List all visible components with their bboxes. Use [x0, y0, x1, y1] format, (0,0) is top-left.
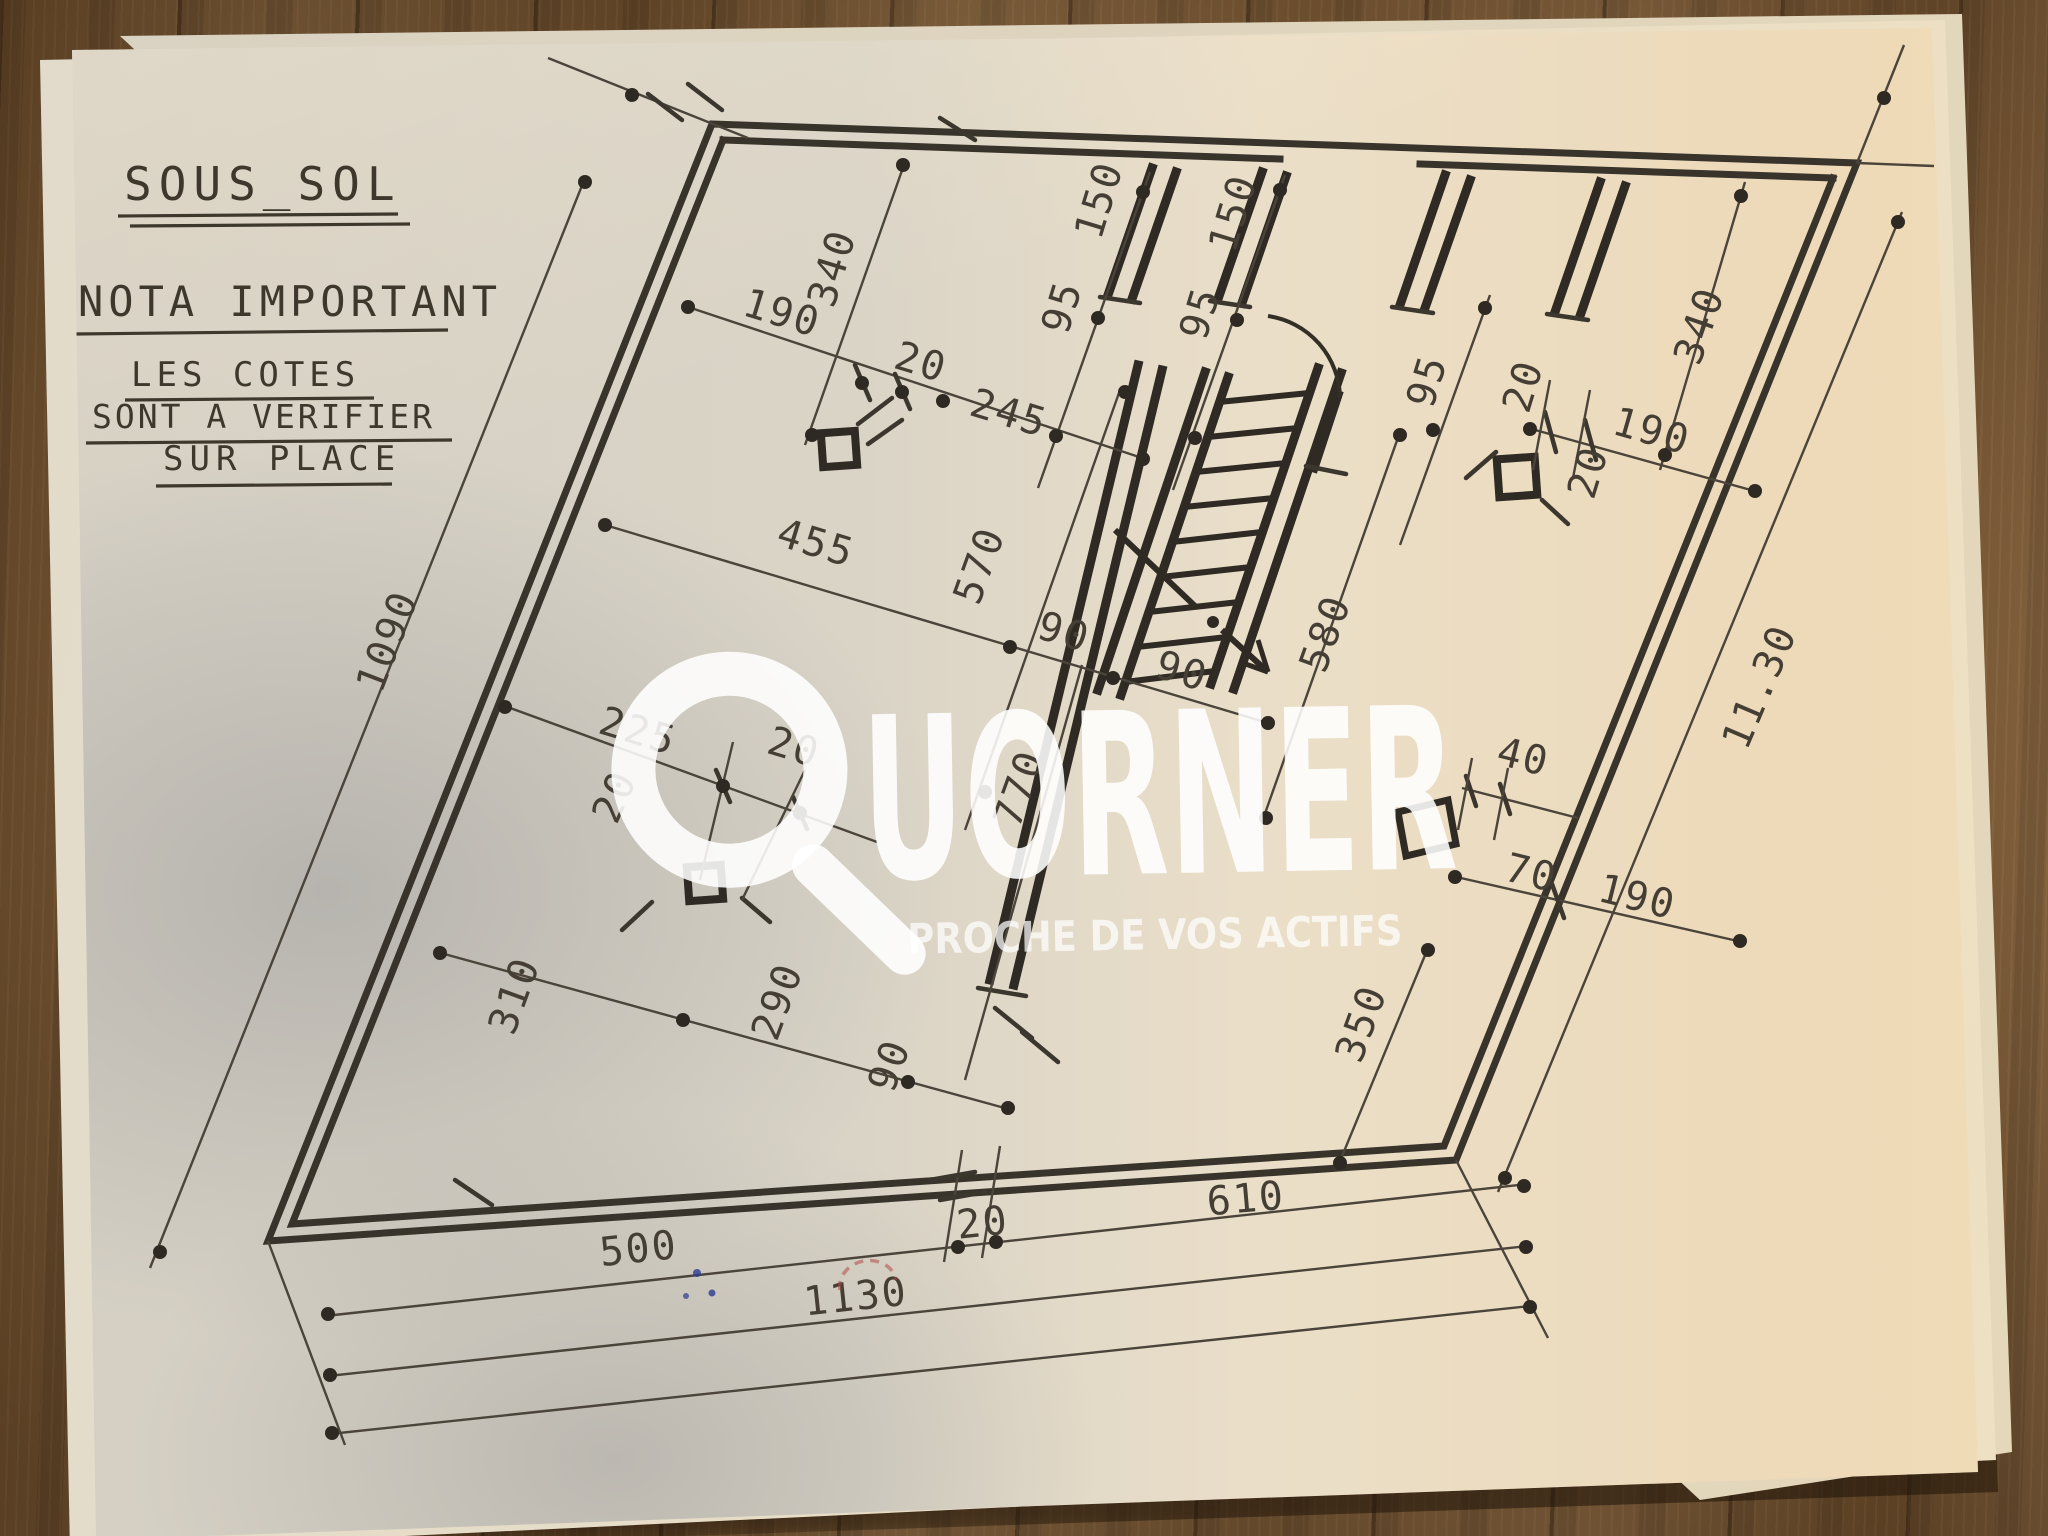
dimension-label: 570	[945, 521, 1015, 610]
nota-important: NOTA IMPORTANT	[78, 277, 502, 326]
dimension-label: 610	[1205, 1173, 1287, 1226]
watermark-tagline: PROCHE DE VOS ACTIFS	[907, 906, 1403, 964]
title-underline	[130, 224, 410, 226]
nota-underline	[74, 330, 448, 334]
dimension-label: 310	[480, 951, 550, 1040]
dimension-label: 95	[1398, 350, 1457, 413]
dimension-label: 95	[1033, 276, 1092, 339]
dimension-label: 350	[1327, 979, 1397, 1068]
note-underline	[156, 484, 392, 486]
dimension-label: 40	[1492, 729, 1554, 786]
dimension-label: 70	[1500, 845, 1562, 902]
note-les-cotes: LES COTES	[131, 355, 360, 395]
floor-plan-drawing: SOUS_SOL NOTA IMPORTANT LES COTES SONT A…	[0, 0, 2048, 1536]
dimension-label: 190	[1594, 866, 1681, 930]
paper-sheet: SOUS_SOL NOTA IMPORTANT LES COTES SONT A…	[0, 0, 2048, 1536]
note-sur-place: SUR PLACE	[163, 439, 401, 479]
photo-of-floor-plan: SOUS_SOL NOTA IMPORTANT LES COTES SONT A…	[0, 0, 2048, 1536]
plan-title: SOUS_SOL	[124, 157, 402, 211]
watermark-brand: UORNER	[860, 660, 1459, 932]
dimension-label: 500	[597, 1222, 680, 1276]
dimension-label: 150	[1200, 169, 1267, 257]
door-swing-arc	[1268, 316, 1340, 398]
dimension-label: 1090	[348, 584, 428, 698]
dimension-label: 245	[965, 380, 1053, 447]
dimension-label: 150	[1066, 156, 1133, 244]
dimension-label: 455	[772, 510, 860, 577]
watermark: UORNER PROCHE DE VOS ACTIFS	[632, 660, 1460, 968]
column	[821, 431, 857, 467]
note-sont-a-verifier: SONT A VERIFIER	[92, 397, 435, 436]
dimension-label: 340	[1665, 281, 1734, 370]
title-underline	[118, 214, 398, 216]
dimension-label: 1130	[801, 1269, 910, 1326]
dimension-label: 290	[743, 957, 813, 1046]
notes-block: SOUS_SOL NOTA IMPORTANT LES COTES SONT A…	[74, 157, 502, 486]
dimension-label: 20	[954, 1197, 1011, 1248]
column	[1497, 457, 1538, 498]
